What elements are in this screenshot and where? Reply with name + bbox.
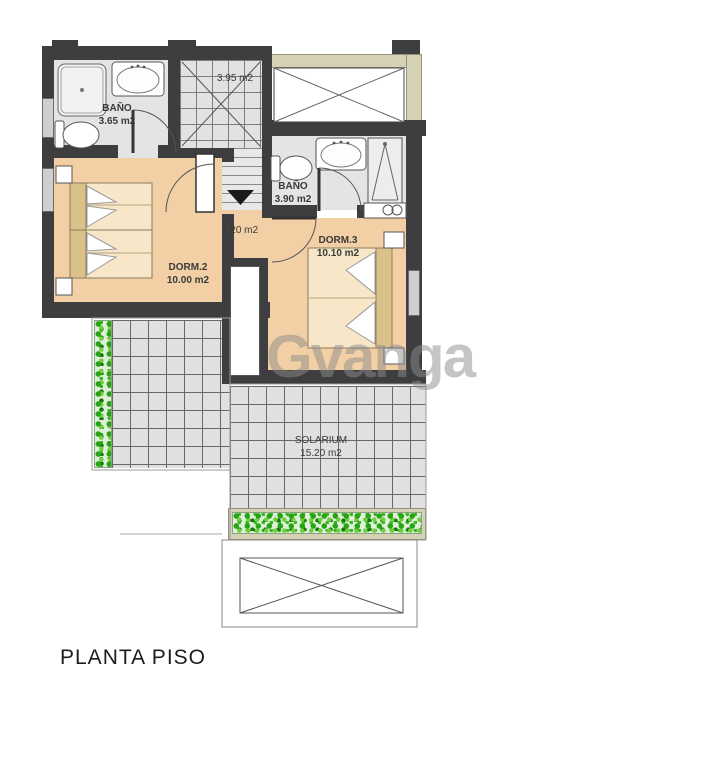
hall-area-label: 1.20 m2: [208, 224, 272, 237]
terrace-outline-left: [92, 318, 230, 470]
bath2-sink: [316, 138, 366, 170]
bath2-name: BAÑO: [262, 180, 324, 193]
terrace-outline-right: [230, 384, 426, 540]
dorm2-nightstand: [56, 166, 72, 183]
bath1-area: 3.65 m2: [72, 115, 162, 128]
solarium-area: 15.20 m2: [283, 447, 359, 460]
dorm3-nightstand: [384, 232, 404, 248]
watermark: Gvanga: [266, 322, 474, 391]
page-title: PLANTA PISO: [60, 646, 206, 670]
void-cross-box-top: [274, 68, 404, 122]
dorm2-area: 10.00 m2: [152, 274, 224, 287]
bath1-name: BAÑO: [72, 102, 162, 115]
dorm2-name: DORM.2: [152, 261, 224, 274]
stairs-down-arrow-icon: [227, 190, 254, 205]
bath2-cabinet: [364, 203, 406, 218]
bath2-shower: [368, 138, 402, 204]
bath2-toilet: [271, 156, 312, 181]
bath1-label: BAÑO 3.65 m2: [72, 102, 162, 128]
dorm3-name: DORM.3: [302, 234, 374, 247]
dorm2-label: DORM.2 10.00 m2: [152, 261, 224, 287]
bath2-door: [319, 168, 361, 211]
bath2-area: 3.90 m2: [262, 193, 324, 206]
void-cross-box-bottom: [222, 540, 417, 627]
solarium-label: SOLARIUM 15.20 m2: [283, 434, 359, 460]
dorm2-nightstand: [56, 278, 72, 295]
dorm3-area: 10.10 m2: [302, 247, 374, 260]
floor-plan: BAÑO 3.65 m2 3.95 m2 BAÑO 3.90 m2 1.20 m…: [0, 0, 722, 760]
stairs-area-label: 3.95 m2: [205, 72, 265, 85]
bath2-label: BAÑO 3.90 m2: [262, 180, 324, 206]
dorm3-label: DORM.3 10.10 m2: [302, 234, 374, 260]
solarium-name: SOLARIUM: [283, 434, 359, 447]
dorm2-door: [166, 154, 214, 212]
bath1-sink: [112, 62, 164, 96]
dorm2-beds: [56, 166, 152, 295]
